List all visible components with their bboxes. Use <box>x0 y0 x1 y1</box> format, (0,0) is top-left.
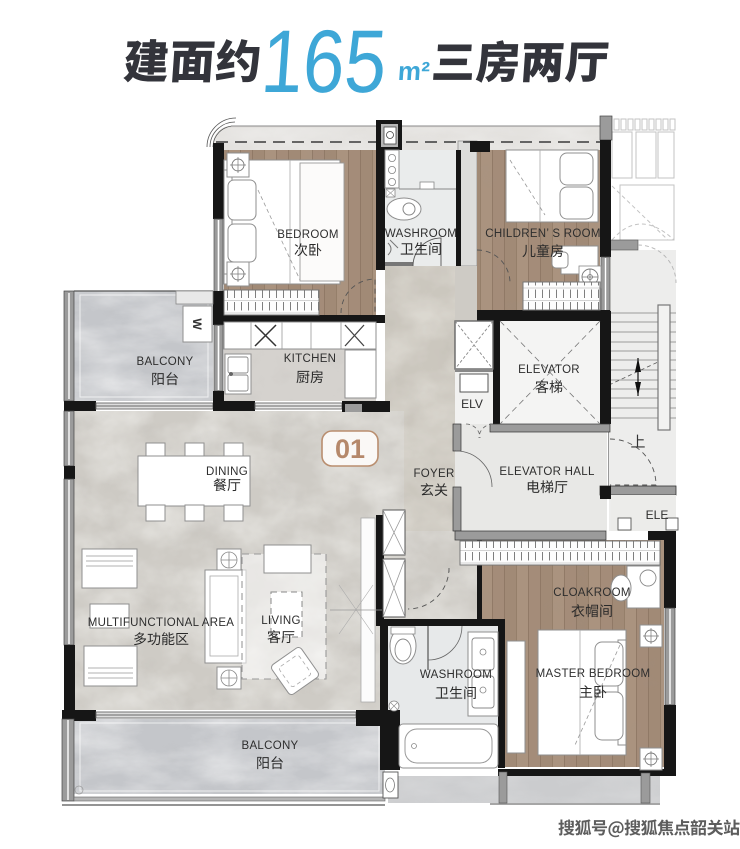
svg-text:165: 165 <box>258 12 390 111</box>
svg-text:WASHROOM: WASHROOM <box>420 669 492 681</box>
svg-text:DINING: DINING <box>206 466 248 478</box>
svg-text:BEDROOM: BEDROOM <box>277 229 339 241</box>
svg-text:WASHROOM: WASHROOM <box>385 228 457 240</box>
svg-text:W: W <box>190 318 204 330</box>
svg-text:m²: m² <box>397 56 431 86</box>
svg-text:MASTER BEDROOM: MASTER BEDROOM <box>536 668 651 680</box>
svg-text:ELEVATOR: ELEVATOR <box>518 364 580 376</box>
svg-text:ELE: ELE <box>646 508 669 522</box>
svg-text:KITCHEN: KITCHEN <box>284 353 337 365</box>
svg-text:MULTIFUNCTIONAL AREA: MULTIFUNCTIONAL AREA <box>88 617 235 629</box>
svg-text:LIVING: LIVING <box>261 615 301 627</box>
svg-text:CLOAKROOM: CLOAKROOM <box>553 587 630 599</box>
svg-text:BALCONY: BALCONY <box>241 740 298 752</box>
svg-text:CHILDREN’ S ROOM: CHILDREN’ S ROOM <box>485 228 601 240</box>
svg-text:FOYER: FOYER <box>413 468 454 480</box>
svg-text:ELEVATOR HALL: ELEVATOR HALL <box>499 466 595 478</box>
svg-text:ELV: ELV <box>461 397 483 411</box>
svg-text:01: 01 <box>335 434 365 464</box>
svg-text:BALCONY: BALCONY <box>136 356 193 368</box>
